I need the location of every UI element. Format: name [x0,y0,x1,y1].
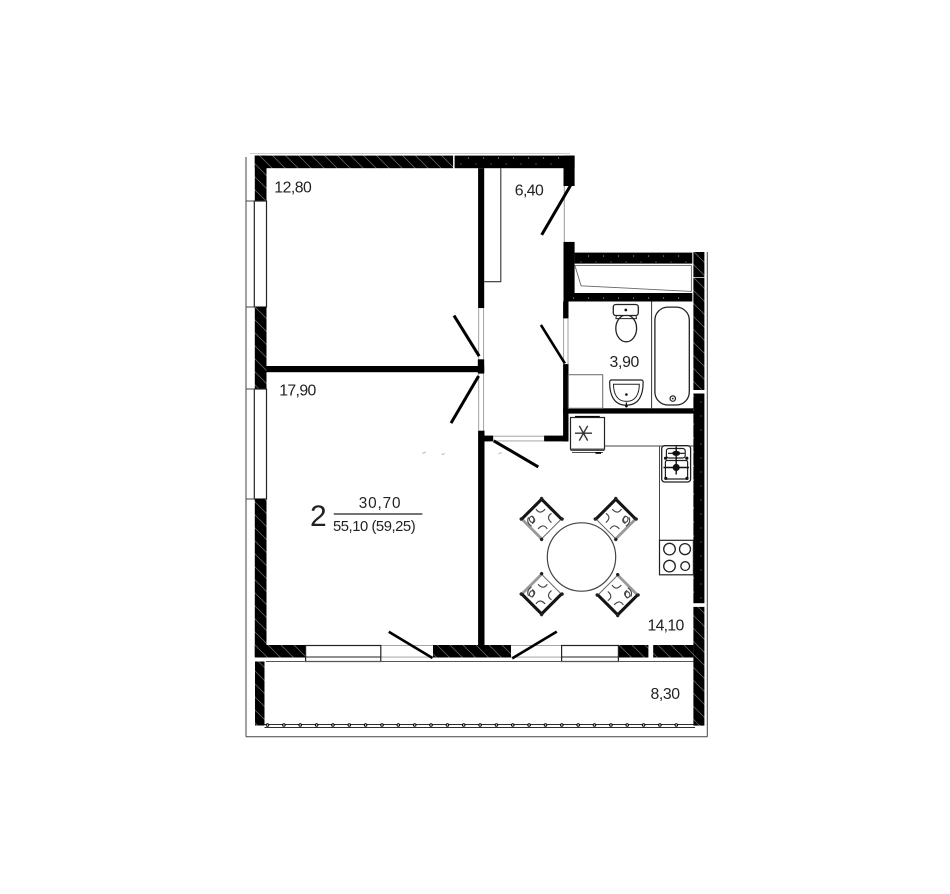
svg-text:8,30: 8,30 [651,686,681,703]
svg-text:14,10: 14,10 [648,618,685,635]
svg-text:30,70: 30,70 [359,495,402,512]
svg-text:6,40: 6,40 [515,183,544,200]
svg-text:3,90: 3,90 [610,354,640,371]
svg-text:17,90: 17,90 [279,382,316,399]
svg-text:12,80: 12,80 [274,180,312,197]
svg-text:55,10 (59,25): 55,10 (59,25) [333,519,416,535]
svg-text:2: 2 [310,500,327,533]
